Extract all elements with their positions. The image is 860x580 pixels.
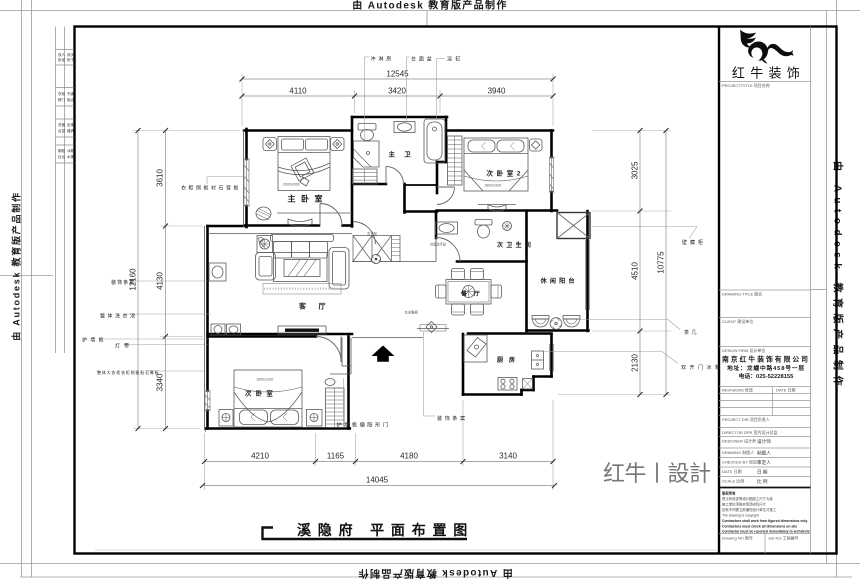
svg-text:茶几: 茶几 [684, 329, 699, 336]
svg-text:4510: 4510 [631, 262, 640, 280]
svg-text:橱柜: 橱柜 [58, 148, 66, 153]
svg-text:台面洗手盆: 台面洗手盆 [430, 242, 447, 247]
svg-text:Drawing NO 图号: Drawing NO 图号 [722, 535, 753, 541]
svg-text:Contractors shall work from fi: Contractors shall work from figured dime… [722, 519, 807, 523]
svg-text:衣柜: 衣柜 [58, 91, 66, 96]
svg-text:红牛丨設計: 红牛丨設計 [603, 461, 711, 486]
svg-text:Job NO 工程编号: Job NO 工程编号 [768, 535, 799, 541]
svg-text:玄关柜: 玄关柜 [367, 231, 378, 236]
svg-text:护墙板偏隐形门: 护墙板偏隐形门 [337, 421, 391, 429]
svg-text:4210: 4210 [251, 452, 269, 461]
svg-text:次卧室: 次卧室 [245, 389, 277, 398]
svg-text:如有不同需立即通知设计单位才施工: 如有不同需立即通知设计单位才施工 [722, 507, 777, 512]
svg-text:移门: 移门 [58, 97, 66, 102]
svg-text:台盆: 台盆 [58, 128, 66, 133]
svg-text:3340: 3340 [156, 373, 165, 391]
svg-text:水槽: 水槽 [67, 154, 75, 159]
svg-text:由 Autodesk 教育版产品制作: 由 Autodesk 教育版产品制作 [352, 0, 507, 12]
svg-text:12545: 12545 [386, 70, 409, 79]
svg-text:整体洗衣池: 整体洗衣池 [100, 313, 138, 320]
svg-text:次卧室2: 次卧室2 [487, 169, 525, 178]
svg-text:壁藏柜: 壁藏柜 [682, 239, 706, 246]
svg-text:Contractors must check all dim: Contractors must check all dimensions on… [722, 525, 797, 529]
svg-text:护墙板: 护墙板 [82, 337, 107, 344]
svg-text:由 Autodesk 教育版产品制作: 由 Autodesk 教育版产品制作 [357, 567, 512, 580]
svg-text:休闲阳台: 休闲阳台 [540, 277, 578, 285]
svg-text:制图人: 制图人 [757, 450, 771, 457]
svg-text:主卧室: 主卧室 [288, 194, 329, 204]
svg-text:南京红牛装饰有限公司: 南京红牛装饰有限公司 [722, 355, 810, 364]
svg-text:电话：025-52228155: 电话：025-52228155 [739, 372, 795, 380]
svg-text:3610: 3610 [156, 169, 165, 187]
svg-text:14045: 14045 [366, 476, 389, 485]
svg-text:禁止利用该等设计图纸之尺寸为准: 禁止利用该等设计图纸之尺寸为准 [722, 496, 773, 501]
svg-text:The drawing is copyright: The drawing is copyright [722, 514, 759, 518]
svg-text:地址：龙蟠中路458号一层: 地址：龙蟠中路458号一层 [727, 364, 805, 372]
svg-text:4180: 4180 [400, 452, 418, 461]
svg-text:冰箱: 冰箱 [67, 148, 75, 153]
svg-text:设计师: 设计师 [757, 438, 771, 445]
svg-text:主卫: 主卫 [389, 150, 420, 159]
svg-text:3940: 3940 [488, 87, 506, 96]
svg-text:厨 房: 厨 房 [497, 356, 517, 364]
svg-text:客 厅: 客 厅 [298, 302, 331, 311]
svg-text:DATE 日期: DATE 日期 [776, 387, 795, 393]
svg-text:DESIGN FIRM 设计单位: DESIGN FIRM 设计单位 [722, 347, 765, 353]
svg-text:3025: 3025 [631, 161, 640, 179]
svg-text:器具: 器具 [67, 128, 75, 133]
svg-text:由 Autodesk 教育版产品制作: 由 Autodesk 教育版产品制作 [832, 161, 845, 391]
svg-text:书桌: 书桌 [67, 91, 75, 96]
svg-text:衣柜侧板衬石膏板: 衣柜侧板衬石膏板 [181, 185, 241, 192]
svg-text:10775: 10775 [657, 251, 666, 274]
svg-text:1165: 1165 [327, 452, 345, 461]
svg-text:CHECKED BY 审定人: CHECKED BY 审定人 [722, 459, 761, 465]
svg-text:DATE 日期: DATE 日期 [722, 468, 741, 474]
svg-text:整体大衣柜衣柜侧板贴石膏板: 整体大衣柜衣柜侧板贴石膏板 [97, 369, 159, 375]
svg-text:施工单位须核实现场实际尺寸: 施工单位须核实现场实际尺寸 [722, 502, 767, 507]
svg-text:Contractor must be reported im: Contractor must be reported immediately … [722, 530, 810, 534]
svg-text:装饰条案: 装饰条案 [111, 279, 135, 286]
svg-text:柜子: 柜子 [67, 57, 75, 62]
svg-text:1600x2100: 1600x2100 [257, 378, 274, 382]
svg-text:由 Autodesk 教育版产品制作: 由 Autodesk 教育版产品制作 [11, 191, 22, 341]
svg-text:餐 厅: 餐 厅 [460, 290, 483, 298]
svg-text:CLIENT 建设单位: CLIENT 建设单位 [722, 318, 753, 324]
svg-text:4110: 4110 [289, 87, 307, 96]
svg-text:2130: 2130 [631, 354, 640, 372]
svg-text:床头: 床头 [67, 52, 75, 57]
svg-text:双人: 双人 [58, 52, 66, 57]
svg-text:审定人: 审定人 [757, 459, 771, 466]
svg-text:浴缸: 浴缸 [447, 56, 464, 63]
svg-text:3420: 3420 [388, 87, 406, 96]
svg-text:玄关鞋柜: 玄关鞋柜 [405, 310, 419, 315]
svg-text:2600x2900: 2600x2900 [283, 183, 300, 187]
svg-text:3140: 3140 [499, 452, 517, 461]
svg-text:DIRECTOR DPR 室内设计总监: DIRECTOR DPR 室内设计总监 [722, 429, 777, 435]
svg-text:SCALE 比例: SCALE 比例 [722, 478, 744, 484]
svg-text:坐便: 坐便 [67, 122, 75, 127]
svg-text:DRAWING TITLE 图名: DRAWING TITLE 图名 [722, 291, 762, 297]
svg-text:灯带: 灯带 [115, 343, 133, 350]
svg-text:装饰条案: 装饰条案 [437, 415, 468, 422]
svg-text:1800x2100: 1800x2100 [485, 184, 502, 188]
svg-text:DRAWING 制图人: DRAWING 制图人 [722, 449, 754, 455]
svg-text:PROJECT DIR 项目负责人: PROJECT DIR 项目负责人 [722, 416, 770, 422]
svg-text:冲淋房: 冲淋房 [371, 56, 395, 63]
svg-text:溪隐府 平面布置图: 溪隐府 平面布置图 [297, 522, 474, 538]
svg-text:版权所有: 版权所有 [722, 491, 736, 496]
svg-text:次卫生间: 次卫生间 [497, 241, 534, 249]
svg-text:红牛装饰: 红牛装饰 [732, 66, 805, 81]
svg-text:REVISIONS 修改: REVISIONS 修改 [722, 387, 753, 393]
svg-text:洗面: 洗面 [58, 122, 66, 127]
svg-text:DESIGNER 设计师: DESIGNER 设计师 [722, 438, 756, 444]
svg-text:比 例: 比 例 [757, 478, 768, 485]
svg-text:台面盆: 台面盆 [411, 56, 435, 63]
svg-text:双开门冰箱: 双开门冰箱 [681, 364, 724, 371]
svg-text:PROJECT/TITLE 项目名称: PROJECT/TITLE 项目名称 [722, 82, 770, 88]
svg-text:卧室: 卧室 [58, 57, 66, 62]
svg-text:灶台: 灶台 [58, 154, 66, 159]
svg-text:组合: 组合 [67, 97, 75, 102]
